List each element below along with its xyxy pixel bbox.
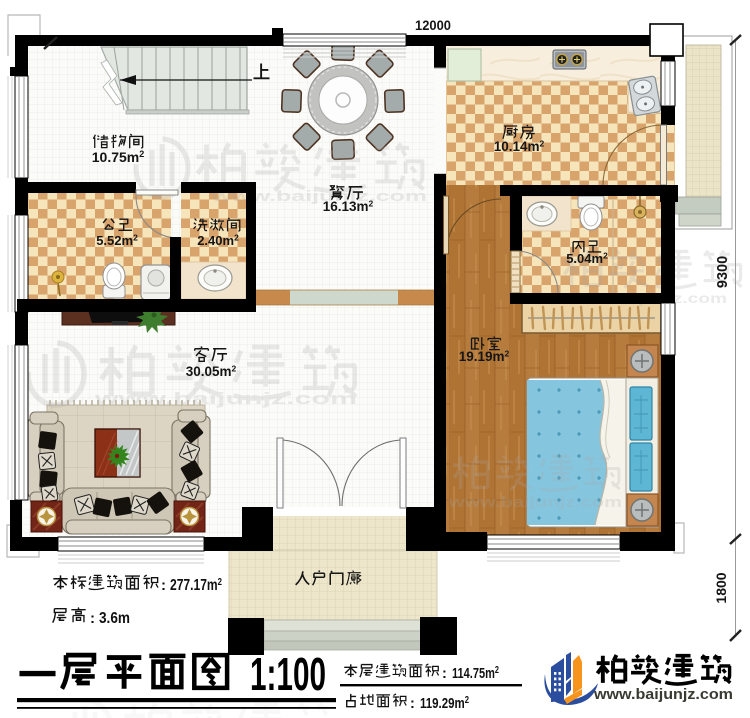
svg-text::: : [410,696,415,712]
svg-text:10.75m2: 10.75m2 [92,149,145,165]
svg-text:12000: 12000 [415,17,451,33]
svg-text:10.14m2: 10.14m2 [494,139,545,155]
svg-text:1:100: 1:100 [250,648,326,700]
svg-text:1800: 1800 [713,572,729,603]
svg-text::: : [90,610,95,627]
svg-text:5.52m2: 5.52m2 [96,233,138,249]
svg-text:16.13m2: 16.13m2 [323,199,374,215]
svg-text:9300: 9300 [715,256,731,288]
svg-text:3.6m: 3.6m [99,610,130,627]
svg-text:119.29m2: 119.29m2 [420,695,469,712]
svg-text:277.17m2: 277.17m2 [170,577,222,594]
svg-text:www.baijunjz.com: www.baijunjz.com [93,390,357,408]
svg-text:2.40m2: 2.40m2 [197,233,239,249]
svg-text:114.75m2: 114.75m2 [452,665,499,682]
svg-text:www.baijunjz.com: www.baijunjz.com [593,686,733,703]
svg-text::: : [442,666,447,682]
svg-text:www.baijunjz.com: www.baijunjz.com [448,495,622,511]
svg-text:19.19m2: 19.19m2 [459,349,510,365]
svg-text:30.05m2: 30.05m2 [186,364,237,380]
svg-text::: : [161,577,166,594]
svg-text:5.04m2: 5.04m2 [566,251,608,267]
